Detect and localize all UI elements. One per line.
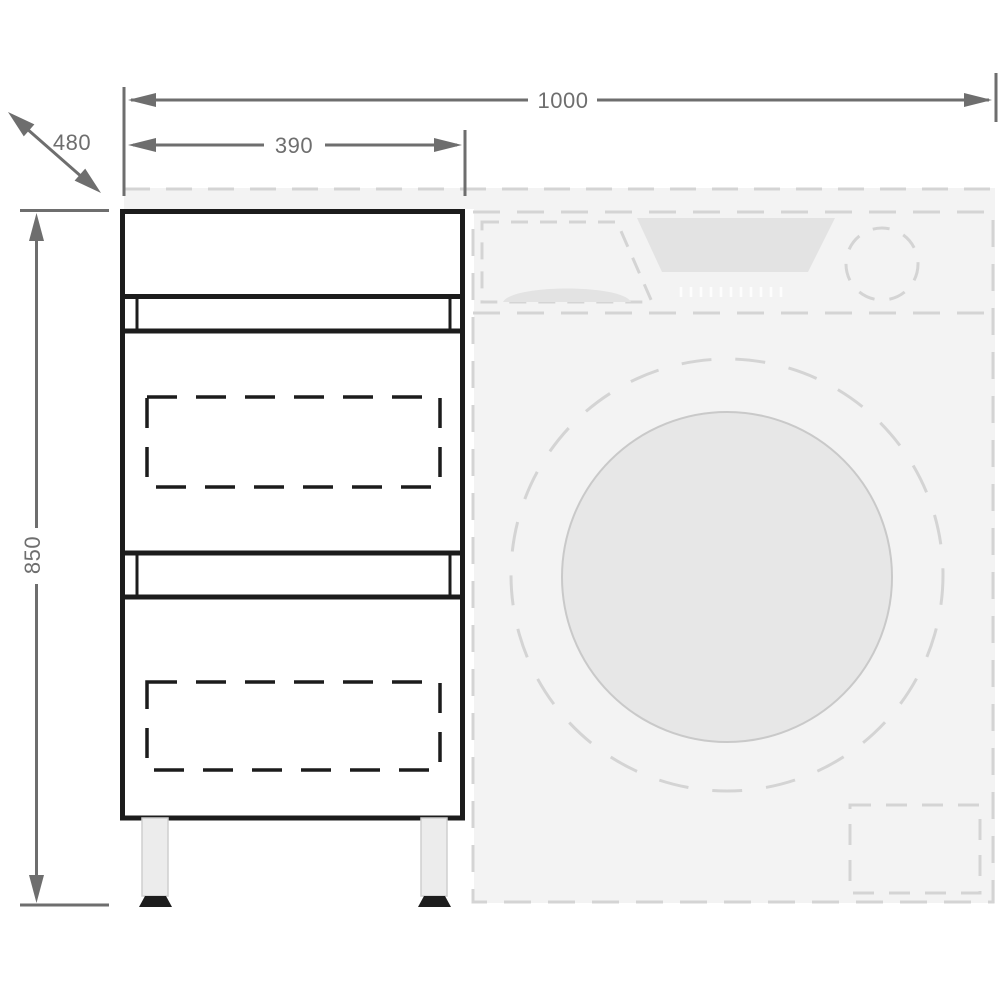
drawing-svg: 1000 390 480 850	[0, 0, 1000, 1000]
cabinet-leg-left	[142, 818, 168, 896]
arrowhead-bottom	[29, 875, 44, 903]
dimension-height: 850	[20, 211, 109, 906]
dimension-total-width: 1000	[124, 73, 996, 196]
dimension-label: 1000	[538, 88, 589, 113]
cabinet-group	[123, 212, 463, 908]
arrowhead-top	[29, 213, 44, 241]
cabinet-foot-left	[139, 896, 172, 907]
countertop-slab	[124, 188, 995, 209]
cabinet-foot-right	[418, 896, 451, 907]
dimension-label: 850	[20, 536, 45, 574]
cabinet-gap-2	[123, 552, 463, 598]
dimension-depth: 480	[8, 112, 101, 193]
cabinet-middle-drawer	[123, 331, 463, 553]
technical-drawing-vanity-and-washer: 1000 390 480 850	[0, 0, 1000, 1000]
arrowhead-left	[128, 138, 156, 152]
cabinet-bottom-drawer	[123, 597, 463, 818]
cabinet-leg-right	[421, 818, 447, 896]
cabinet-top-drawer	[123, 212, 463, 297]
arrowhead-right	[964, 93, 992, 107]
dimension-label: 480	[53, 130, 91, 155]
dimension-label: 390	[275, 133, 313, 158]
display-panel	[637, 218, 835, 272]
dimension-cabinet-width: 390	[128, 130, 465, 196]
door-glass	[562, 412, 892, 742]
cabinet-gap-1	[123, 296, 463, 332]
arrowhead-left	[128, 93, 156, 107]
arrowhead-right	[434, 138, 462, 152]
